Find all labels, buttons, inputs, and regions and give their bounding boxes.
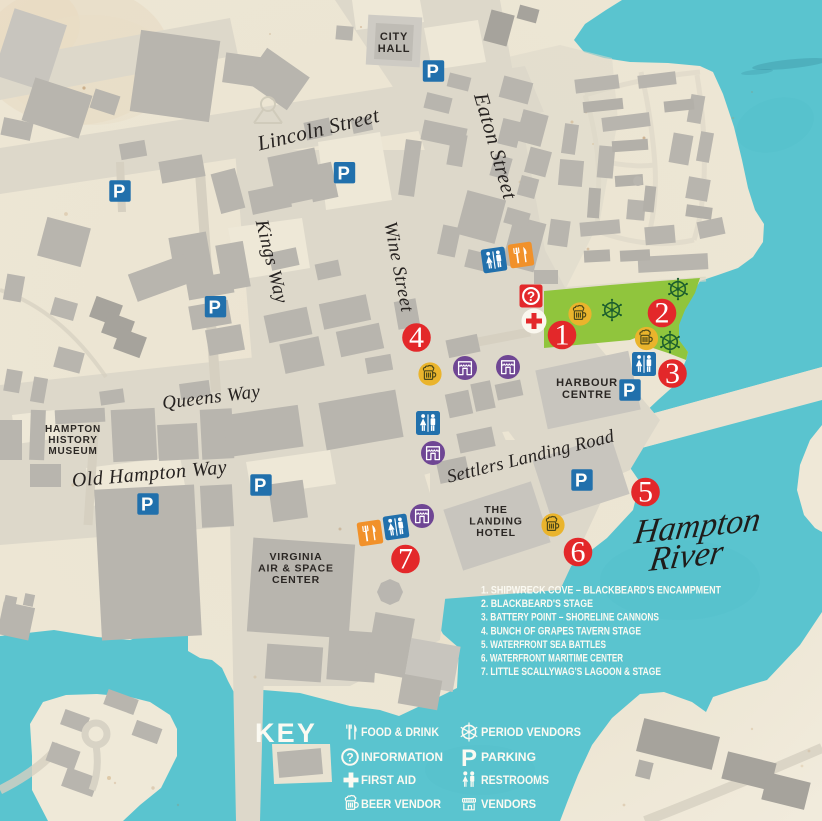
svg-text:BEER VENDOR: BEER VENDOR bbox=[361, 797, 441, 811]
svg-text:1: 1 bbox=[555, 319, 570, 352]
svg-text:P: P bbox=[461, 745, 477, 772]
svg-text:HARBOURCENTRE: HARBOURCENTRE bbox=[556, 377, 618, 401]
svg-text:FOOD & DRINK: FOOD & DRINK bbox=[361, 725, 439, 739]
svg-text:2. BLACKBEARD'S STAGE: 2. BLACKBEARD'S STAGE bbox=[481, 598, 593, 610]
svg-text:5: 5 bbox=[638, 476, 653, 509]
svg-text:RESTROOMS: RESTROOMS bbox=[481, 773, 549, 787]
svg-text:CITYHALL: CITYHALL bbox=[378, 31, 411, 55]
svg-text:FIRST AID: FIRST AID bbox=[361, 773, 416, 787]
svg-text:KEY: KEY bbox=[255, 718, 317, 748]
svg-text:2: 2 bbox=[655, 297, 670, 330]
svg-text:7: 7 bbox=[398, 543, 413, 576]
svg-text:4. BUNCH OF GRAPES TAVERN STAG: 4. BUNCH OF GRAPES TAVERN STAGE bbox=[481, 625, 641, 637]
svg-text:7. LITTLE SCALLYWAG'S LAGOON &: 7. LITTLE SCALLYWAG'S LAGOON & STAGE bbox=[481, 666, 661, 678]
svg-text:3. BATTERY POINT – SHORELINE C: 3. BATTERY POINT – SHORELINE CANNONS bbox=[481, 612, 659, 624]
svg-text:6: 6 bbox=[571, 536, 586, 569]
svg-text:INFORMATION: INFORMATION bbox=[361, 750, 443, 764]
svg-text:VENDORS: VENDORS bbox=[481, 797, 536, 811]
svg-text:PARKING: PARKING bbox=[481, 750, 536, 764]
svg-text:5. WATERFRONT SEA BATTLES: 5. WATERFRONT SEA BATTLES bbox=[481, 639, 606, 651]
svg-text:6. WATERFRONT MARITIME CENTER: 6. WATERFRONT MARITIME CENTER bbox=[481, 653, 623, 665]
svg-text:1. SHIPWRECK COVE – BLACKBEARD: 1. SHIPWRECK COVE – BLACKBEARD'S ENCAMPM… bbox=[481, 585, 721, 597]
svg-text:HAMPTONHISTORYMUSEUM: HAMPTONHISTORYMUSEUM bbox=[45, 424, 101, 457]
svg-text:4: 4 bbox=[409, 321, 424, 354]
svg-text:?: ? bbox=[346, 750, 353, 764]
svg-text:PERIOD VENDORS: PERIOD VENDORS bbox=[481, 725, 581, 739]
svg-text:3: 3 bbox=[665, 357, 680, 390]
